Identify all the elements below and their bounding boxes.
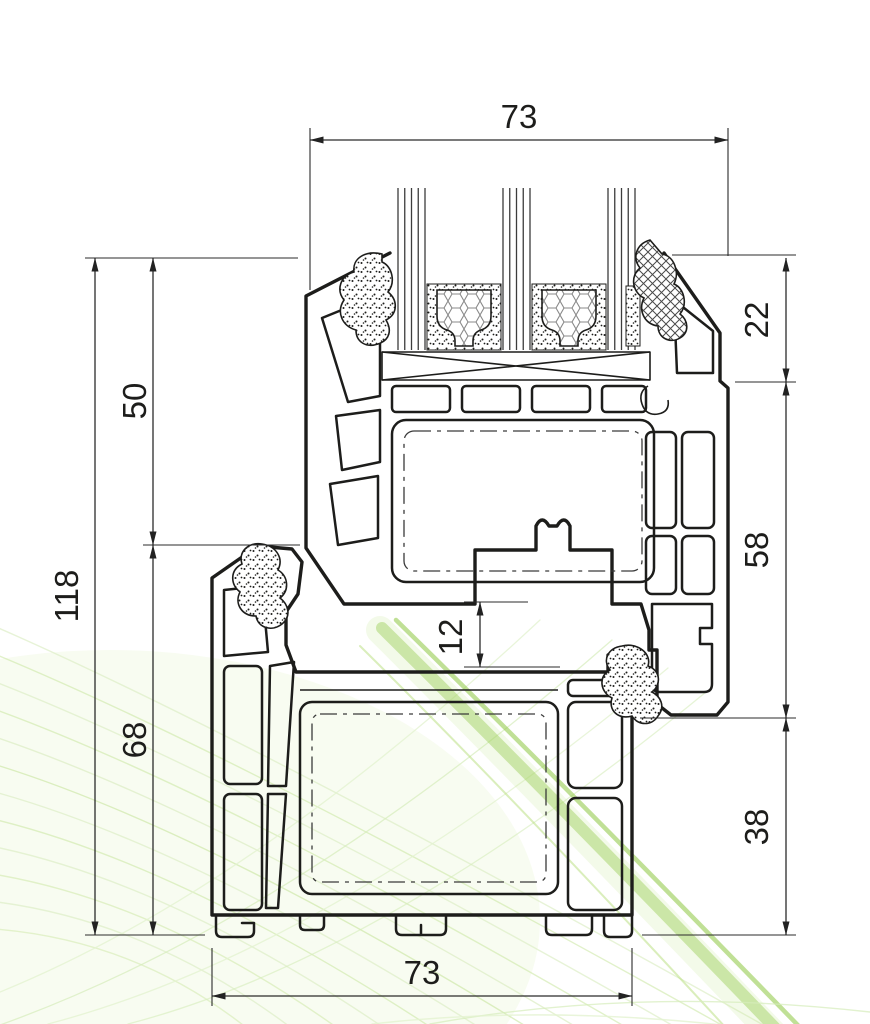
dim-label-gap: 12	[432, 619, 469, 656]
glazing-gasket-left	[340, 253, 395, 345]
glazing-bridge	[382, 352, 650, 412]
dim-label-top-width: 73	[501, 98, 538, 135]
technical-drawing-page: 73 73 118 50 68 22 58 38 12	[0, 0, 870, 1024]
dimension-right-glazing-bead: 22	[672, 255, 796, 382]
junction-gasket-left	[233, 544, 288, 628]
dimension-left-upper: 50	[116, 258, 300, 545]
dimension-middle-gap: 12	[432, 602, 560, 667]
window-profile-section-drawing: 73 73 118 50 68 22 58 38 12	[0, 0, 870, 1024]
dim-label-right-bottom: 38	[738, 809, 775, 846]
glazing-unit	[382, 188, 650, 412]
dim-label-left-upper: 50	[116, 383, 153, 420]
dim-label-left-lower: 68	[116, 722, 153, 759]
sash-main-chamber	[392, 420, 654, 582]
dim-label-left-total: 118	[48, 570, 85, 623]
dim-label-right-middle: 58	[738, 532, 775, 569]
dim-label-right-top: 22	[738, 302, 775, 339]
dim-label-bottom-width: 73	[404, 954, 441, 991]
